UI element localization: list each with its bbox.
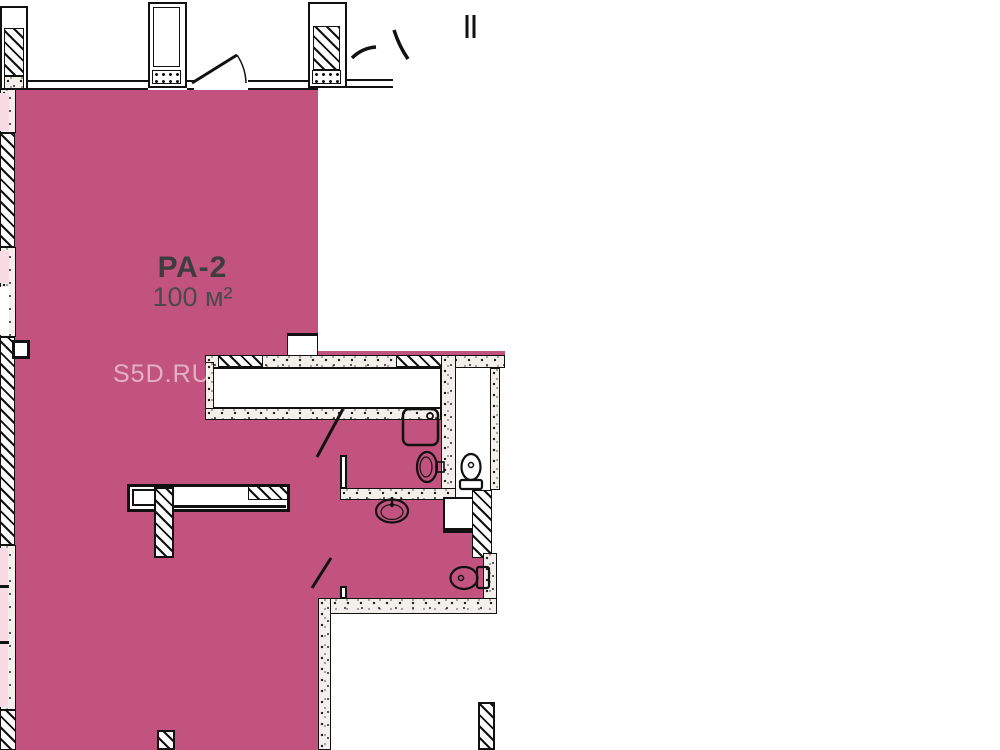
wall-hall-right [490, 368, 500, 490]
wall-top-segment-1 [26, 80, 148, 90]
wall-door-stub-upper [340, 455, 347, 489]
balcony-door-sill [152, 70, 181, 84]
floor-plan: РА-2 100 м² S5D.RU [0, 0, 1000, 750]
wall-bottom-vertical [318, 598, 331, 750]
toilet-hall-icon [460, 454, 482, 489]
window-frame-right [308, 2, 347, 88]
adjacent-room-cell-3 [0, 287, 9, 335]
wall-corridor-top [205, 355, 505, 368]
window-right-sill [312, 70, 341, 84]
wall-left-hatch-1 [0, 133, 15, 247]
balcony-door-inner [153, 7, 180, 67]
adjacent-room-cell-4 [0, 548, 8, 707]
fragment-arc-small [352, 47, 376, 58]
door-swing-arc-main [237, 55, 246, 83]
wall-tick-1 [0, 585, 9, 588]
partition-column [154, 487, 174, 558]
wall-bathroom-bottom [318, 598, 497, 614]
wall-top-segment-4 [345, 79, 393, 88]
unit-area-main[interactable] [15, 90, 318, 750]
wall-left-hatch-2 [0, 337, 15, 545]
window-left-sill [4, 76, 24, 89]
column-bottom-right [478, 702, 495, 750]
wall-left-hatch-3 [0, 710, 16, 750]
wall-corridor-top-hatch-1 [218, 355, 263, 367]
adjacent-room-cell-2 [0, 251, 9, 283]
watermark-text: S5D.RU [113, 360, 223, 389]
door-leaf-main [192, 55, 237, 83]
wall-bathroom-divider [340, 488, 456, 500]
corridor-duct [213, 368, 441, 408]
partition-counter [127, 484, 290, 512]
wall-corridor-top-hatch-2 [396, 355, 446, 367]
window-right-hatch [313, 26, 340, 70]
window-frame-left [0, 6, 28, 90]
wall-tick-2 [0, 641, 9, 644]
wall-corridor-bottom [205, 408, 441, 420]
wall-bathroom-right [441, 355, 456, 490]
column-bottom-inner [157, 730, 175, 750]
partition-counter-hatch [248, 486, 288, 500]
window-left-hatch [4, 28, 24, 76]
balcony-door-frame [148, 2, 187, 88]
fragment-arc-long [394, 30, 408, 59]
adjacent-room-cell-1 [0, 93, 9, 131]
unit-id-label: РА-2 [130, 251, 255, 285]
wall-shaft-hatch [472, 490, 492, 558]
wall-top-segment-2 [187, 80, 194, 90]
wall-lower-right [483, 553, 497, 599]
electrical-panel-icon [12, 340, 30, 359]
partition-counter-line [160, 505, 286, 508]
unit-area-label: 100 м² [130, 282, 255, 313]
